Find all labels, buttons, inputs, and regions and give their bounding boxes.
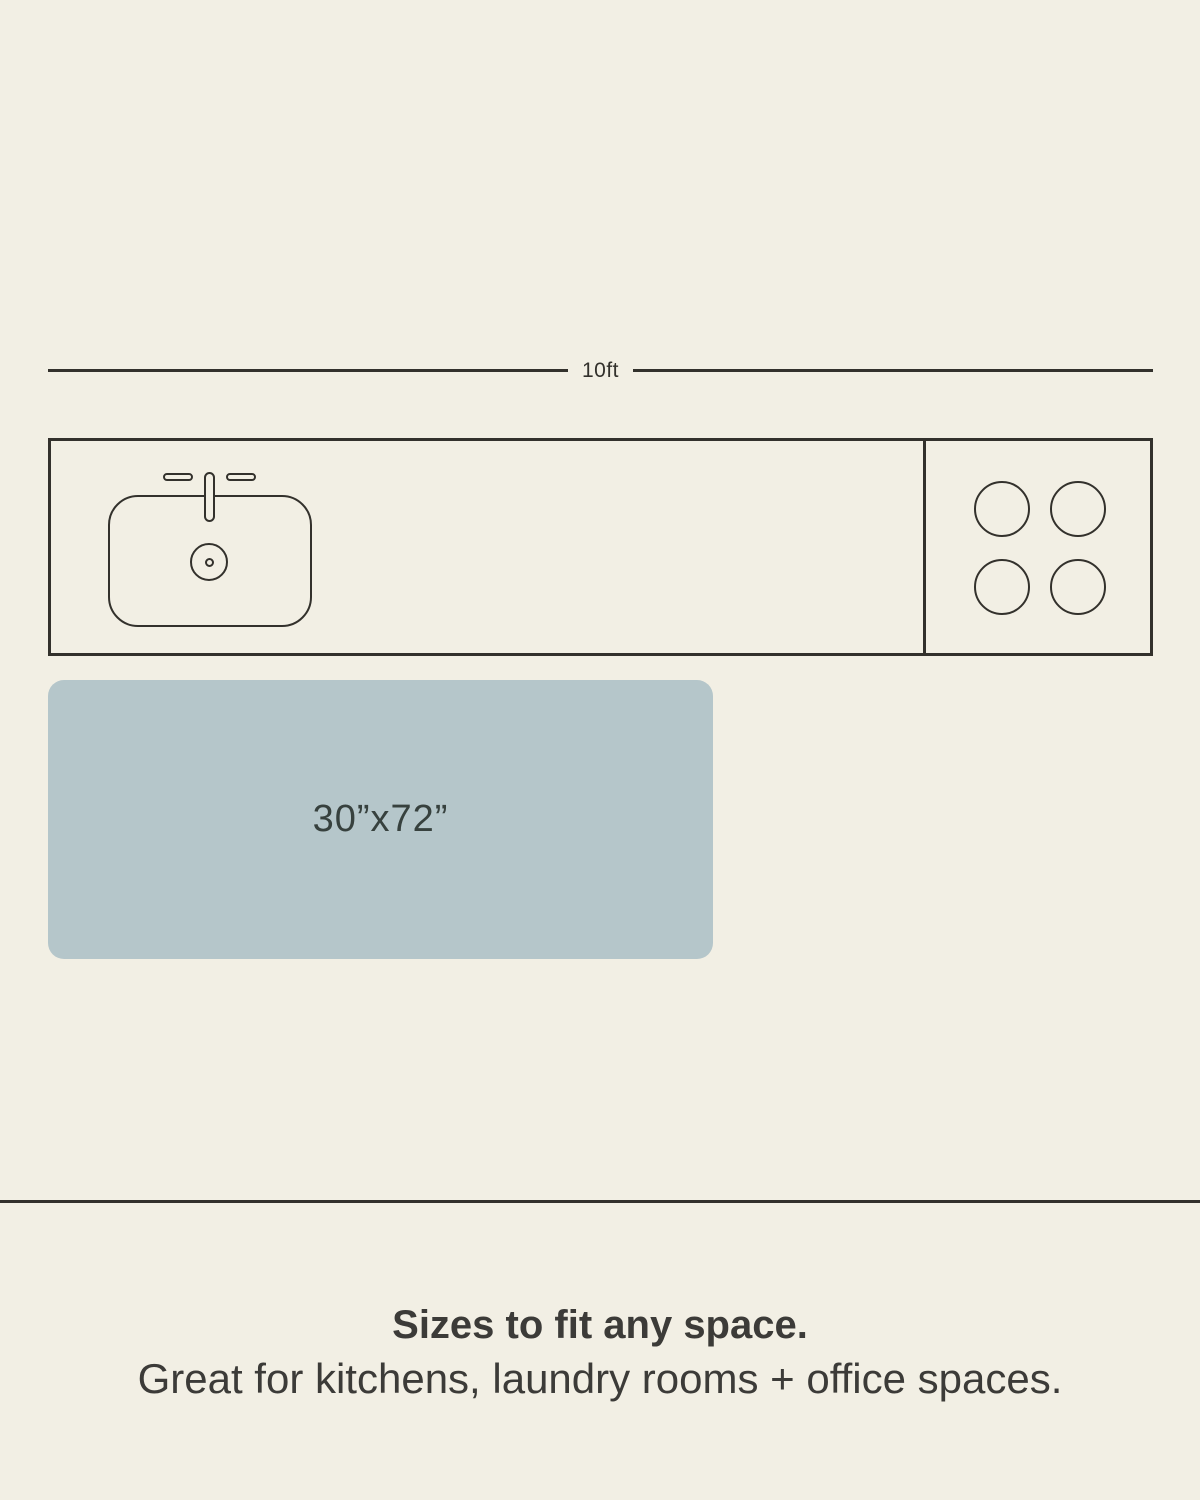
faucet-handle-right-icon: [226, 473, 256, 481]
footer-subheading: Great for kitchens, laundry rooms + offi…: [0, 1355, 1200, 1403]
section-divider: [0, 1200, 1200, 1203]
countertop-outline: [48, 438, 1153, 656]
sink-drain-icon: [190, 543, 228, 581]
mat-size-label: 30”x72”: [313, 798, 449, 841]
burner-bottom-right-icon: [1050, 559, 1106, 615]
counter-section-divider: [923, 441, 926, 653]
dimension-indicator: 10ft: [48, 358, 1153, 383]
drain-hole-icon: [205, 558, 214, 567]
footer-caption: Sizes to fit any space. Great for kitche…: [0, 1302, 1200, 1403]
burner-bottom-left-icon: [974, 559, 1030, 615]
burner-top-right-icon: [1050, 481, 1106, 537]
footer-heading: Sizes to fit any space.: [0, 1302, 1200, 1348]
dimension-line-right: [633, 369, 1153, 372]
faucet-handle-left-icon: [163, 473, 193, 481]
dimension-label: 10ft: [582, 359, 619, 383]
size-diagram-page: 10ft 30”x72” Sizes to fit any space. Gre…: [0, 0, 1200, 1500]
dimension-line-left: [48, 369, 568, 372]
burner-top-left-icon: [974, 481, 1030, 537]
mat-size-swatch: 30”x72”: [48, 680, 713, 959]
faucet-spout-icon: [204, 472, 215, 522]
